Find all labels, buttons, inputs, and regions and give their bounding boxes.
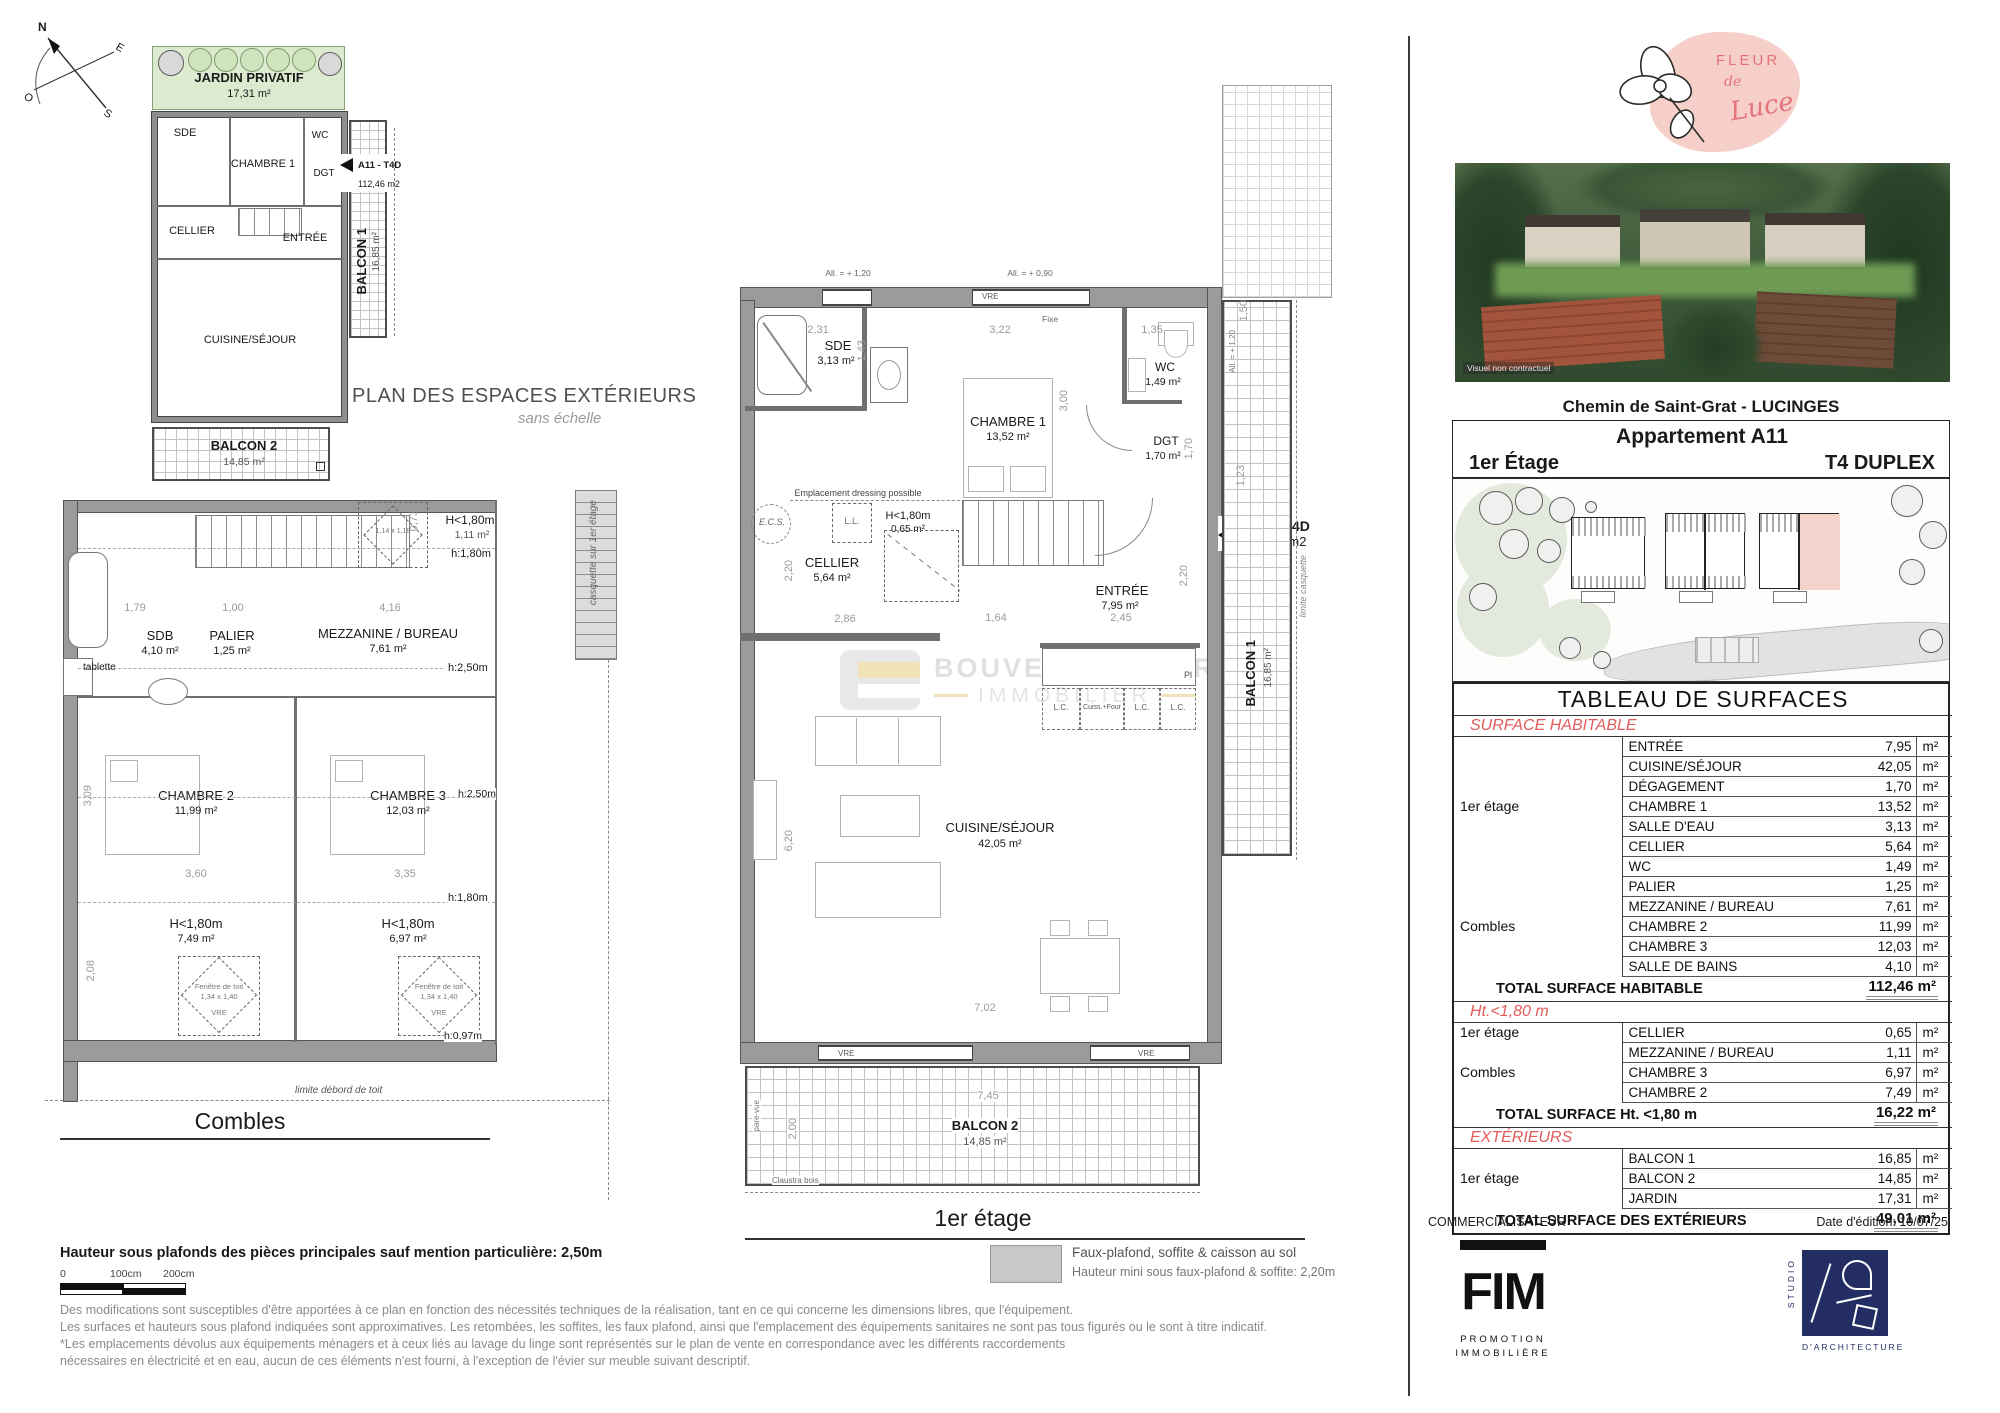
scale-100: 100cm [110, 1268, 142, 1280]
room-cell: CHAMBRE 3 [1622, 1062, 1858, 1082]
room-label: DGT [1153, 434, 1178, 448]
photo-roof [1753, 291, 1896, 368]
value-cell: 11,99 [1858, 916, 1916, 936]
room-area: 1,70 m² [1145, 450, 1181, 462]
roof-hatch [1760, 514, 1800, 532]
parking [1695, 637, 1759, 663]
kitchen-unit: L.C. [1042, 688, 1080, 730]
stairs-icon [962, 500, 1104, 566]
edition-date: Date d'édition: 10/07/25 [1816, 1215, 1948, 1229]
apartment-header: Appartement A11 1er Étage T4 DUPLEX [1452, 420, 1950, 478]
apartment-title: Appartement A11 [1616, 425, 1788, 449]
room-cell: BALCON 2 [1622, 1168, 1858, 1188]
dimension-label: 2,20 [783, 560, 795, 581]
chair-icon [1088, 996, 1108, 1012]
room-cell: CHAMBRE 2 [1622, 1082, 1858, 1102]
wall [1207, 287, 1222, 1045]
balcony-footprint [1581, 591, 1615, 603]
unit-cell: m² [1916, 1022, 1952, 1042]
room-label: WC [1155, 360, 1175, 374]
value-cell: 7,49 [1858, 1082, 1916, 1102]
photo-house [1525, 215, 1620, 267]
partition-line [790, 500, 970, 501]
project-address: Chemin de Saint-Grat - LUCINGES [1563, 397, 1840, 417]
brand-line1: FLEUR [1716, 52, 1780, 69]
unit-cell: m² [1916, 776, 1952, 796]
claustra-label: Claustra bois [772, 1176, 819, 1185]
group-cell: 1er étage [1454, 1148, 1622, 1208]
scale-zero: 0 [60, 1268, 66, 1280]
dimension-label: 2,31 [807, 324, 828, 336]
room-cell: JARDIN [1622, 1188, 1858, 1208]
roof-hatch [1572, 518, 1646, 536]
sofa-split [898, 718, 899, 764]
room-cell: MEZZANINE / BUREAU [1622, 896, 1858, 916]
unit-cell: m² [1916, 1148, 1952, 1168]
studio-label: D'ARCHITECTURE [1802, 1342, 1904, 1352]
room-cell: SALLE DE BAINS [1622, 956, 1858, 976]
unit-cell: m² [1916, 836, 1952, 856]
section-header: SURFACE HABITABLE [1454, 715, 1952, 736]
dimension-label: 2,20 [1178, 565, 1190, 586]
photo-house [1765, 213, 1865, 267]
apartment-type: T4 DUPLEX [1825, 452, 1935, 475]
brand-line2: de [1724, 74, 1741, 90]
wall [740, 300, 755, 1045]
room-cell: PALIER [1622, 876, 1858, 896]
total-label: TOTAL SURFACE HABITABLE [1454, 976, 1858, 1001]
apartment-floor: 1er Étage [1469, 452, 1559, 475]
total-row: TOTAL SURFACE HABITABLE112,46 m² [1454, 976, 1952, 1001]
unit-cell: m² [1916, 916, 1952, 936]
dimension-label: 2,45 [1110, 612, 1131, 624]
title-rule [745, 1238, 1305, 1240]
tree-icon [1891, 485, 1923, 517]
value-cell: 12,03 [1858, 936, 1916, 956]
legend-swatch [990, 1245, 1062, 1283]
unit-cell: m² [1916, 1082, 1952, 1102]
sofa-icon [815, 716, 941, 766]
value-cell: 7,95 [1858, 736, 1916, 756]
sofa-icon [815, 862, 941, 918]
casquette-limit-line [1296, 300, 1297, 860]
disclaimer-line: *Les emplacements dévolus aux équipement… [60, 1337, 1065, 1351]
fim-glyph: FIM [1460, 1240, 1546, 1326]
balcony-footprint [1679, 591, 1713, 603]
flower-icon [1612, 38, 1712, 148]
room-cell: CUISINE/SÉJOUR [1622, 756, 1858, 776]
pare-vue-label: pare-vue [752, 1100, 761, 1132]
sill-note: All. = + 0,90 [1007, 268, 1052, 278]
wall [1122, 308, 1127, 403]
casquette-limit-label: limite casquette [1298, 555, 1308, 618]
roof-hatch [1572, 576, 1646, 588]
window-type: Fixe [1042, 314, 1058, 324]
value-cell: 0,65 [1858, 1022, 1916, 1042]
sill-note: All. = + 1,20 [1228, 330, 1237, 373]
balcony-1-zone [1222, 300, 1292, 856]
chair-icon [1050, 996, 1070, 1012]
chair-icon [1088, 920, 1108, 936]
ecs-label: E.C.S. [759, 517, 785, 527]
surface-table-grid: TABLEAU DE SURFACES SURFACE HABITABLE 1e… [1454, 684, 1952, 1233]
room-cell: MEZZANINE / BUREAU [1622, 1042, 1858, 1062]
total-value: 112,46 m² [1858, 976, 1952, 1001]
legend-line2: Hauteur mini sous faux-plafond & soffite… [1072, 1265, 1335, 1279]
room-label: CELLIER [805, 555, 859, 570]
building-footprint [1571, 517, 1645, 589]
kitchen-counter [1042, 648, 1196, 686]
legend: Faux-plafond, soffite & caisson au sol H… [990, 1245, 1410, 1295]
wall [740, 633, 940, 641]
dimension-label: 7,02 [974, 1002, 995, 1014]
table-title: TABLEAU DE SURFACES [1454, 684, 1952, 715]
balcony-2-area: 14,85 m² [963, 1136, 1006, 1148]
photo-roof [1481, 295, 1665, 371]
unit-cell: m² [1916, 796, 1952, 816]
fim-line1: PROMOTION [1448, 1334, 1558, 1345]
room-cell: WC [1622, 856, 1858, 876]
dimension-label: 1,50 [1238, 300, 1250, 321]
unit-cell: m² [1916, 856, 1952, 876]
coffee-table-icon [840, 795, 920, 837]
side-table-icon [753, 780, 777, 860]
dimension-label: 1,43 [856, 340, 868, 361]
washer-label: L.L. [844, 516, 859, 526]
room-label: CUISINE/SÉJOUR [945, 820, 1054, 835]
legend-line1: Faux-plafond, soffite & caisson au sol [1072, 1245, 1296, 1260]
total-row: TOTAL SURFACE Ht. <1,80 m16,22 m² [1454, 1102, 1952, 1127]
table-row: 1er étageENTRÉE7,95m² [1454, 736, 1952, 756]
tree-icon [1469, 583, 1497, 611]
shower-icon [757, 315, 807, 395]
scale-bar: 0 100cm 200cm [60, 1268, 240, 1298]
unit-cell: m² [1916, 876, 1952, 896]
ceiling-height-note: Hauteur sous plafonds des pièces princip… [60, 1245, 602, 1261]
chair-icon [1050, 920, 1070, 936]
room-cell: CHAMBRE 3 [1622, 936, 1858, 956]
room-label: SDE [825, 338, 852, 353]
surface-table: TABLEAU DE SURFACES SURFACE HABITABLE 1e… [1452, 682, 1950, 1235]
fim-name: FIM [1461, 1263, 1545, 1321]
studio-square [1802, 1250, 1888, 1336]
placard-label: Pl [1184, 670, 1192, 680]
first-floor-title: 1er étage [934, 1205, 1031, 1232]
dimension-label: 7,45 [977, 1090, 998, 1102]
room-cell: CELLIER [1622, 1022, 1858, 1042]
section-header: Ht.<1,80 m [1454, 1001, 1952, 1022]
disclaimer-line: nécessaires en électricité et en eau, au… [60, 1354, 750, 1368]
value-cell: 1,70 [1858, 776, 1916, 796]
dressing-note: Emplacement dressing possible [794, 488, 921, 498]
tree-icon [1499, 529, 1529, 559]
roof-hatch [1666, 576, 1746, 588]
sill-note: All. = + 1,20 [825, 268, 870, 278]
room-cell: BALCON 1 [1622, 1148, 1858, 1168]
sofa-split [856, 718, 857, 764]
unit-cell: m² [1916, 956, 1952, 976]
table-row: 1er étageBALCON 116,85m² [1454, 1148, 1952, 1168]
brand-logo: FLEUR de Luce [1612, 26, 1802, 158]
unit-cell: m² [1916, 896, 1952, 916]
room-cell: SALLE D'EAU [1622, 816, 1858, 836]
value-cell: 16,85 [1858, 1148, 1916, 1168]
room-area: 5,64 m² [813, 572, 850, 584]
balcony-2-label: BALCON 2 [952, 1118, 1018, 1133]
table-row: ComblesMEZZANINE / BUREAU1,11m² [1454, 1042, 1952, 1062]
unit-cell: m² [1916, 1188, 1952, 1208]
window-type: VRE [1138, 1049, 1154, 1058]
section-header: EXTÉRIEURS [1454, 1127, 1952, 1148]
door-arc-icon [1095, 498, 1153, 556]
table-row: ComblesPALIER1,25m² [1454, 876, 1952, 896]
dimension-label: 1,70 [1183, 438, 1195, 459]
value-cell: 1,49 [1858, 856, 1916, 876]
balcony-rail [745, 1192, 1200, 1193]
photo-caption: Visuel non contractuel [1463, 362, 1554, 374]
tree-icon [1585, 501, 1597, 513]
fim-logo: FIM PROMOTION IMMOBILIÈRE [1448, 1240, 1558, 1390]
tree-icon [1899, 559, 1925, 585]
window [822, 289, 872, 306]
greenery [1457, 561, 1549, 657]
group-cell: Combles [1454, 876, 1622, 976]
tree-icon [1479, 491, 1513, 525]
value-cell: 13,52 [1858, 796, 1916, 816]
room-label: CHAMBRE 1 [970, 414, 1046, 429]
dimension-label: 6,20 [783, 830, 795, 851]
kitchen-unit: L.C. [1124, 688, 1160, 730]
disclaimer-line: Les surfaces et hauteurs sous plafond in… [60, 1320, 1267, 1334]
room-cell: CELLIER [1622, 836, 1858, 856]
roof-hatch [1666, 514, 1746, 532]
group-cell: 1er étage [1454, 736, 1622, 876]
studio-vertical-label: STUDIO [1786, 1258, 1796, 1308]
photo-house [1640, 209, 1750, 267]
site-plan [1452, 478, 1950, 682]
wall [1122, 400, 1182, 404]
window-type: VRE [838, 1049, 854, 1058]
room-area: 13,52 m² [986, 431, 1029, 443]
pillow-icon [1010, 466, 1046, 492]
pillow-icon [968, 466, 1004, 492]
tree-icon [1515, 487, 1543, 515]
room-area: 7,95 m² [1101, 600, 1138, 612]
table-row: 1er étageCELLIER0,65m² [1454, 1022, 1952, 1042]
window-type: VRE [982, 292, 998, 301]
value-cell: 4,10 [1858, 956, 1916, 976]
road [1602, 615, 1950, 682]
project-photo: Visuel non contractuel [1455, 163, 1950, 382]
group-cell: Combles [1454, 1042, 1622, 1102]
value-cell: 3,13 [1858, 816, 1916, 836]
balcony-1-label: BALCON 1 [1243, 640, 1258, 706]
dimension-label: 2,00 [787, 1118, 799, 1139]
washbasin-bowl [877, 360, 901, 390]
unit-cell: m² [1916, 816, 1952, 836]
tree-icon [1919, 629, 1943, 653]
panel-divider [1408, 36, 1410, 1396]
upper-terrace-zone [1222, 85, 1332, 298]
group-cell: 1er étage [1454, 1022, 1622, 1042]
building-footprint [1665, 513, 1745, 589]
unit-highlight [1800, 514, 1840, 590]
tree-icon [1559, 637, 1581, 659]
building-footprint-highlight [1759, 513, 1839, 589]
dimension-label: 2,86 [834, 613, 855, 625]
room-area: 1,49 m² [1145, 376, 1181, 388]
photo-shape [1665, 303, 1765, 382]
unit-cell: m² [1916, 1062, 1952, 1082]
room-label: H<1,80m [886, 510, 931, 522]
scale-seg [123, 1289, 186, 1295]
room-cell: CHAMBRE 1 [1622, 796, 1858, 816]
value-cell: 5,64 [1858, 836, 1916, 856]
kitchen-unit: L.C. [1160, 688, 1196, 730]
scale-seg [60, 1289, 123, 1295]
value-cell: 1,25 [1858, 876, 1916, 896]
room-area: 42,05 m² [978, 838, 1021, 850]
balcony-1-area: 16,85 m² [1263, 648, 1274, 687]
room-cell: ENTRÉE [1622, 736, 1858, 756]
fim-line2: IMMOBILIÈRE [1448, 1348, 1558, 1359]
room-area: 3,13 m² [817, 355, 854, 367]
balcony-footprint [1773, 591, 1807, 603]
room-label: ENTRÉE [1096, 583, 1149, 598]
unit-cell: m² [1916, 1042, 1952, 1062]
total-value: 16,22 m² [1858, 1102, 1952, 1127]
unit-cell: m² [1916, 936, 1952, 956]
first-floor-plan: BOUVET CARTIER IMMOBILIER All. = + 1,20 … [0, 0, 1408, 1413]
watermark-icon [840, 650, 920, 710]
wall [745, 406, 867, 411]
tree-icon [1919, 521, 1947, 549]
photo-shape [1495, 263, 1915, 297]
tree-icon [1593, 651, 1611, 669]
tree-icon [1537, 539, 1561, 563]
door-arc-icon [1086, 405, 1132, 451]
dimension-label: 1,64 [985, 612, 1006, 624]
unit-cell: m² [1916, 1168, 1952, 1188]
unit-cell: m² [1916, 736, 1952, 756]
value-cell: 6,97 [1858, 1062, 1916, 1082]
room-cell: CHAMBRE 2 [1622, 916, 1858, 936]
value-cell: 1,11 [1858, 1042, 1916, 1062]
value-cell: 42,05 [1858, 756, 1916, 776]
dining-table-icon [1040, 938, 1120, 994]
floor-plan-document: N E S O JARDIN PRIVATIF 17,31 m² SDE CHA… [0, 0, 2000, 1413]
dimension-label: 1,35 [1141, 324, 1162, 336]
disclaimer-line: Des modifications sont susceptibles d'êt… [60, 1303, 1073, 1317]
room-cell: DÉGAGEMENT [1622, 776, 1858, 796]
value-cell: 7,61 [1858, 896, 1916, 916]
dimension-label: 3,00 [1058, 390, 1070, 411]
washbasin-icon [1128, 358, 1146, 392]
toilet-bowl [1164, 330, 1188, 358]
dimension-label: 1,23 [1235, 465, 1247, 486]
value-cell: 17,31 [1858, 1188, 1916, 1208]
total-label: TOTAL SURFACE Ht. <1,80 m [1454, 1102, 1858, 1127]
kitchen-unit: Cuiss.+Four [1080, 688, 1124, 730]
scale-200: 200cm [163, 1268, 195, 1280]
architecture-logo: STUDIO D'ARCHITECTURE [1786, 1248, 1916, 1388]
value-cell: 14,85 [1858, 1168, 1916, 1188]
dimension-label: 3,22 [989, 324, 1010, 336]
commercialisateur-label: COMMERCIALISATEUR [1428, 1215, 1566, 1229]
unit-cell: m² [1916, 756, 1952, 776]
